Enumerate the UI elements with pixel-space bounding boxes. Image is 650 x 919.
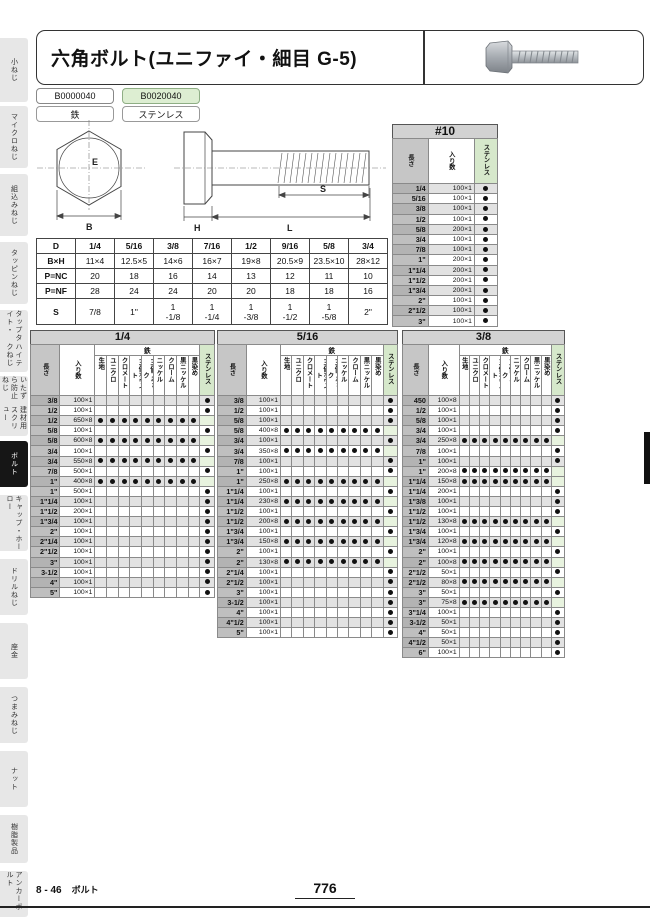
iron-finish-cell xyxy=(469,648,479,658)
availability-dot xyxy=(482,479,487,484)
quantity-cell: 600×8 xyxy=(60,436,95,446)
size-cell: 4"1/2 xyxy=(218,618,247,628)
iron-finish-cell xyxy=(292,406,303,416)
iron-finish-cell xyxy=(372,446,383,456)
availability-dot xyxy=(462,479,467,484)
availability-dot xyxy=(191,438,196,443)
size10-header-row: 長さ入り数ステンレス xyxy=(393,139,498,184)
iron-finish-cell xyxy=(165,476,177,486)
iron-finish-cell xyxy=(521,426,531,436)
iron-finish-cell xyxy=(521,416,531,426)
iron-finish-cell xyxy=(281,527,292,537)
iron-finish-cell xyxy=(360,597,371,607)
iron-finish-cell xyxy=(349,507,360,517)
availability-dot xyxy=(156,418,161,423)
sidebar-tab: タップタイト・ハイテクねじ xyxy=(0,310,28,372)
iron-finish-cell xyxy=(469,396,479,406)
iron-finish-cell xyxy=(292,426,303,436)
sidebar-tab-label-line: マイクロねじ xyxy=(10,113,19,161)
iron-finish-cell xyxy=(176,527,188,537)
iron-finish-cell xyxy=(541,446,551,456)
col-header-stainless-label: ステンレス xyxy=(387,353,394,385)
iron-finish-cell xyxy=(292,466,303,476)
iron-finish-cell xyxy=(459,607,469,617)
iron-finish-cell xyxy=(469,406,479,416)
stainless-cell xyxy=(474,275,497,285)
sidebar-tab: タッピンねじ xyxy=(0,242,28,304)
quantity-cell: 150×8 xyxy=(428,476,459,486)
table-row: 1"250×8 xyxy=(218,476,398,486)
size-cell: 1" xyxy=(31,486,60,496)
spec-size-header: 3/4 xyxy=(349,239,388,254)
iron-finish-cell xyxy=(372,456,383,466)
iron-finish-cell xyxy=(281,406,292,416)
availability-dot xyxy=(555,529,560,534)
quantity-cell: 100×1 xyxy=(428,607,459,617)
col-header-quantity: 入り数 xyxy=(428,139,474,184)
iron-finish-cell xyxy=(469,567,479,577)
availability-dot xyxy=(306,499,311,504)
table-row: 1"3/4150×8 xyxy=(218,537,398,547)
table-row: 1/2100×1 xyxy=(218,406,398,416)
iron-finish-cell xyxy=(326,527,337,537)
availability-dot xyxy=(284,448,289,453)
iron-finish-cell xyxy=(337,406,348,416)
availability-dot xyxy=(462,539,467,544)
size-cell: 3/4 xyxy=(393,234,429,244)
stainless-cell xyxy=(383,406,397,416)
availability-dot xyxy=(363,428,368,433)
iron-finish-cell xyxy=(118,496,130,506)
iron-finish-cell xyxy=(292,618,303,628)
availability-dot xyxy=(462,468,467,473)
iron-finish-cell xyxy=(459,577,469,587)
iron-finish-cell xyxy=(292,597,303,607)
stainless-cell xyxy=(551,426,564,436)
quantity-cell: 100×1 xyxy=(60,587,95,597)
iron-finish-cell xyxy=(510,436,520,446)
size-cell: 1"1/2 xyxy=(403,517,429,527)
spec-value: 1 -5/8 xyxy=(310,299,349,325)
iron-finish-cell xyxy=(153,496,165,506)
sidebar-tab-label-line: アンカーボルト xyxy=(5,871,23,917)
iron-finish-cell xyxy=(510,587,520,597)
iron-finish-cell xyxy=(118,507,130,517)
quantity-cell: 100×8 xyxy=(428,396,459,406)
availability-dot xyxy=(318,539,323,544)
quantity-cell: 100×1 xyxy=(428,214,474,224)
iron-finish-cell xyxy=(459,638,469,648)
spec-row: B×H11×412.5×514×616×719×820.5×923.5×1028… xyxy=(37,254,388,269)
quantity-cell: 50×1 xyxy=(428,628,459,638)
iron-finish-cell xyxy=(315,507,326,517)
availability-dot xyxy=(555,630,560,635)
iron-finish-cell xyxy=(130,527,142,537)
iron-finish-cell xyxy=(153,446,165,456)
iron-finish-cell xyxy=(281,597,292,607)
size10-table: #10長さ入り数ステンレス1/4100×15/16100×13/8100×11/… xyxy=(392,124,498,327)
iron-finish-cell xyxy=(130,466,142,476)
availability-dot xyxy=(341,479,346,484)
iron-finish-cell xyxy=(292,436,303,446)
iron-finish-cell xyxy=(541,426,551,436)
product-table-1-4: 1/4長さ入り数鉄ステンレス生地ユニクロクロメート三価ホワイト三価ブラックニッケ… xyxy=(30,330,215,598)
availability-dot xyxy=(555,499,560,504)
iron-finish-cell xyxy=(118,396,130,406)
iron-finish-cell xyxy=(165,557,177,567)
stainless-cell xyxy=(474,296,497,306)
iron-finish-cell xyxy=(337,446,348,456)
availability-dot xyxy=(110,438,115,443)
stainless-cell xyxy=(200,587,215,597)
iron-finish-cell xyxy=(349,436,360,446)
iron-finish-cell xyxy=(490,607,500,617)
stainless-cell xyxy=(383,597,397,607)
iron-finish-cell xyxy=(153,547,165,557)
iron-finish-cell xyxy=(141,486,153,496)
iron-finish-cell xyxy=(141,557,153,567)
iron-finish-cell xyxy=(500,587,510,597)
iron-finish-cell xyxy=(303,476,314,486)
iron-finish-cell xyxy=(500,638,510,648)
stainless-cell xyxy=(551,618,564,628)
col-header-length-label: 長さ xyxy=(42,363,49,376)
iron-finish-cell xyxy=(349,567,360,577)
iron-finish-cell xyxy=(326,577,337,587)
iron-finish-cell xyxy=(176,466,188,476)
availability-dot xyxy=(145,458,150,463)
iron-finish-cell xyxy=(188,396,200,406)
table-row: 2"100×1 xyxy=(403,547,565,557)
table-row: 1"1/2130×8 xyxy=(403,517,565,527)
iron-finish-cell xyxy=(303,446,314,456)
table-row: 3"1/4100×1 xyxy=(403,607,565,617)
availability-dot xyxy=(98,479,103,484)
iron-finish-cell xyxy=(521,517,531,527)
iron-finish-cell xyxy=(531,436,541,446)
iron-finish-cell xyxy=(188,406,200,416)
availability-dot xyxy=(375,479,380,484)
iron-finish-cell xyxy=(153,537,165,547)
availability-dot xyxy=(483,267,488,272)
iron-finish-cell xyxy=(500,607,510,617)
iron-finish-cell xyxy=(510,597,520,607)
spec-value: 16×7 xyxy=(193,254,232,269)
availability-dot xyxy=(388,468,393,473)
iron-finish-cell xyxy=(349,476,360,486)
sidebar-tab-label-line: 組込みねじ xyxy=(10,185,19,225)
quantity-cell: 200×1 xyxy=(428,486,459,496)
iron-finish-cell xyxy=(510,577,520,587)
availability-dot xyxy=(318,448,323,453)
col-header-finish-label: 三価ホワイト xyxy=(490,357,500,393)
col-header-finish: 三価ブラック xyxy=(500,356,510,396)
iron-finish-cell xyxy=(490,396,500,406)
iron-finish-cell xyxy=(130,567,142,577)
col-header-quantity: 入り数 xyxy=(246,345,280,396)
quantity-cell: 100×1 xyxy=(428,547,459,557)
iron-finish-cell xyxy=(315,406,326,416)
iron-finish-cell xyxy=(118,587,130,597)
stainless-cell xyxy=(551,597,564,607)
stainless-cell xyxy=(474,194,497,204)
availability-dot xyxy=(555,428,560,433)
spec-value: 1 -1/2 xyxy=(271,299,310,325)
spec-value: 20.5×9 xyxy=(271,254,310,269)
table-row: 6"100×1 xyxy=(403,648,565,658)
col-header-finish: ユニクロ xyxy=(107,356,119,396)
quantity-cell: 200×1 xyxy=(428,224,474,234)
iron-finish-cell xyxy=(490,547,500,557)
size-cell: 1" xyxy=(393,255,429,265)
iron-finish-cell xyxy=(141,426,153,436)
iron-finish-cell xyxy=(118,466,130,476)
iron-finish-cell xyxy=(188,537,200,547)
iron-finish-cell xyxy=(531,396,541,406)
iron-finish-cell xyxy=(292,607,303,617)
iron-finish-cell xyxy=(500,597,510,607)
iron-finish-cell xyxy=(490,466,500,476)
sidebar-tab-label: 組込みねじ xyxy=(10,185,19,225)
size-cell: 2"1/4 xyxy=(31,537,60,547)
iron-finish-cell xyxy=(337,557,348,567)
availability-dot xyxy=(306,479,311,484)
col-header-finish-label: ユニクロ xyxy=(109,357,116,382)
table-row: 4"1/250×1 xyxy=(403,638,565,648)
iron-finish-cell xyxy=(130,496,142,506)
availability-dot xyxy=(205,468,210,473)
col-header-finish: クロメート xyxy=(303,356,314,396)
stainless-cell xyxy=(383,557,397,567)
iron-finish-cell xyxy=(337,426,348,436)
iron-finish-cell xyxy=(95,426,107,436)
spec-size-header: 1/2 xyxy=(232,239,271,254)
stainless-cell xyxy=(200,446,215,456)
availability-dot xyxy=(363,448,368,453)
spec-size-header: 3/8 xyxy=(154,239,193,254)
iron-finish-cell xyxy=(107,426,119,436)
iron-finish-cell xyxy=(500,507,510,517)
sidebar-tab: 樹脂製品 xyxy=(0,815,28,863)
col-header-finish-label: 黒染め xyxy=(190,357,197,376)
iron-finish-cell xyxy=(349,517,360,527)
table-row: 3-1/250×1 xyxy=(403,618,565,628)
quantity-cell: 100×1 xyxy=(428,406,459,416)
availability-dot xyxy=(472,479,477,484)
iron-finish-cell xyxy=(292,416,303,426)
iron-finish-cell xyxy=(531,486,541,496)
iron-finish-cell xyxy=(480,416,490,426)
iron-finish-cell xyxy=(469,577,479,587)
iron-finish-cell xyxy=(459,567,469,577)
iron-finish-cell xyxy=(315,517,326,527)
iron-finish-cell xyxy=(531,618,541,628)
availability-dot xyxy=(363,479,368,484)
table-row: 1"3/8100×1 xyxy=(403,496,565,506)
size-cell: 1/2 xyxy=(31,406,60,416)
quantity-cell: 100×1 xyxy=(246,396,280,406)
size-cell: 1"1/2 xyxy=(218,507,247,517)
stainless-cell xyxy=(551,476,564,486)
iron-finish-cell xyxy=(459,466,469,476)
size-cell: 5/8 xyxy=(31,426,60,436)
iron-finish-cell xyxy=(510,638,520,648)
iron-finish-cell xyxy=(326,416,337,426)
stainless-cell xyxy=(551,527,564,537)
availability-dot xyxy=(205,549,210,554)
edge-index-mark xyxy=(644,432,650,484)
iron-finish-cell xyxy=(469,426,479,436)
availability-dot xyxy=(513,600,518,605)
iron-finish-cell xyxy=(490,416,500,426)
iron-finish-cell xyxy=(480,527,490,537)
stainless-cell xyxy=(383,567,397,577)
availability-dot xyxy=(205,509,210,514)
sidebar-tab: 組込みねじ xyxy=(0,174,28,236)
availability-dot xyxy=(341,448,346,453)
availability-dot xyxy=(503,468,508,473)
spec-table-grid: D1/45/163/87/161/29/165/83/4B×H11×412.5×… xyxy=(36,238,388,325)
iron-finish-cell xyxy=(281,486,292,496)
iron-finish-cell xyxy=(281,416,292,426)
iron-finish-cell xyxy=(360,426,371,436)
col-header-finish: 三価ホワイト xyxy=(315,356,326,396)
availability-dot xyxy=(306,559,311,564)
stainless-cell xyxy=(200,537,215,547)
col-header-finish: ユニクロ xyxy=(469,356,479,396)
iron-finish-cell xyxy=(510,517,520,527)
stainless-cell xyxy=(200,456,215,466)
iron-finish-cell xyxy=(153,486,165,496)
iron-finish-cell xyxy=(107,466,119,476)
availability-dot xyxy=(388,438,393,443)
quantity-cell: 100×1 xyxy=(246,527,280,537)
iron-finish-cell xyxy=(326,547,337,557)
iron-finish-cell xyxy=(303,628,314,638)
iron-finish-cell xyxy=(510,527,520,537)
iron-finish-cell xyxy=(349,607,360,617)
iron-finish-cell xyxy=(531,517,541,527)
stainless-cell xyxy=(551,638,564,648)
iron-finish-cell xyxy=(541,517,551,527)
iron-finish-cell xyxy=(349,446,360,456)
iron-finish-cell xyxy=(480,446,490,456)
iron-finish-cell xyxy=(165,587,177,597)
availability-dot xyxy=(388,579,393,584)
iron-finish-cell xyxy=(510,456,520,466)
availability-dot xyxy=(205,489,210,494)
iron-finish-cell xyxy=(107,456,119,466)
size-cell: 3/4 xyxy=(31,446,60,456)
iron-finish-cell xyxy=(315,476,326,486)
quantity-cell: 100×1 xyxy=(428,194,474,204)
quantity-cell: 250×8 xyxy=(246,476,280,486)
availability-dot xyxy=(98,418,103,423)
iron-finish-cell xyxy=(521,446,531,456)
iron-finish-cell xyxy=(531,557,541,567)
iron-finish-cell xyxy=(315,396,326,406)
iron-finish-cell xyxy=(281,507,292,517)
iron-finish-cell xyxy=(176,517,188,527)
iron-finish-cell xyxy=(141,446,153,456)
iron-finish-cell xyxy=(349,547,360,557)
quantity-cell: 100×1 xyxy=(246,436,280,446)
iron-finish-cell xyxy=(95,587,107,597)
size-cell: 2"1/2 xyxy=(403,577,429,587)
iron-finish-cell xyxy=(372,597,383,607)
spec-value: 12.5×5 xyxy=(115,254,154,269)
availability-dot xyxy=(110,479,115,484)
iron-finish-cell xyxy=(510,466,520,476)
availability-dot xyxy=(363,539,368,544)
availability-dot xyxy=(98,438,103,443)
stainless-cell xyxy=(383,446,397,456)
technical-drawing: B E xyxy=(34,118,399,236)
stainless-cell xyxy=(200,577,215,587)
iron-finish-cell xyxy=(490,517,500,527)
availability-dot xyxy=(295,559,300,564)
size-cell: 1"1/4 xyxy=(403,476,429,486)
iron-finish-cell xyxy=(188,486,200,496)
iron-finish-cell xyxy=(281,496,292,506)
size-cell: 1"1/4 xyxy=(31,496,60,506)
iron-finish-cell xyxy=(281,557,292,567)
quantity-cell: 100×1 xyxy=(246,577,280,587)
iron-finish-cell xyxy=(360,628,371,638)
table-row: 7/8100×1 xyxy=(393,245,498,255)
size-cell: 3/4 xyxy=(403,436,429,446)
iron-finish-cell xyxy=(510,496,520,506)
footer-page-ref: 8 - 46 xyxy=(36,885,62,896)
size-cell: 1"3/4 xyxy=(31,517,60,527)
table-row: 1/2100×1 xyxy=(31,406,215,416)
size-cell: 1" xyxy=(218,466,247,476)
table-row: 1"3/4100×1 xyxy=(218,527,398,537)
iron-finish-cell xyxy=(480,517,490,527)
size-cell: 1"3/4 xyxy=(403,527,429,537)
stainless-cell xyxy=(383,456,397,466)
iron-finish-cell xyxy=(303,406,314,416)
iron-finish-cell xyxy=(541,436,551,446)
stainless-cell xyxy=(383,517,397,527)
availability-dot xyxy=(523,438,528,443)
availability-dot xyxy=(503,600,508,605)
quantity-cell: 100×1 xyxy=(428,306,474,316)
quantity-cell: 100×1 xyxy=(246,587,280,597)
availability-dot xyxy=(513,519,518,524)
iron-finish-cell xyxy=(500,496,510,506)
iron-finish-cell xyxy=(153,396,165,406)
col-header-finish-label: 黒染め xyxy=(374,357,381,376)
availability-dot xyxy=(133,479,138,484)
spec-size-header: 5/16 xyxy=(115,239,154,254)
iron-finish-cell xyxy=(118,406,130,416)
quantity-cell: 200×1 xyxy=(428,255,474,265)
col-header-finish-label: クロメート xyxy=(481,357,488,389)
iron-finish-cell xyxy=(326,507,337,517)
quantity-cell: 230×8 xyxy=(246,496,280,506)
iron-finish-cell xyxy=(165,456,177,466)
iron-finish-cell xyxy=(541,486,551,496)
sidebar-tab-label-line: 座金 xyxy=(10,643,19,659)
iron-finish-cell xyxy=(490,476,500,486)
iron-finish-cell xyxy=(372,486,383,496)
availability-dot xyxy=(523,600,528,605)
availability-dot xyxy=(472,468,477,473)
sidebar-tab: つまみねじ xyxy=(0,687,28,743)
iron-finish-cell xyxy=(292,628,303,638)
spec-row-label: B×H xyxy=(37,254,76,269)
